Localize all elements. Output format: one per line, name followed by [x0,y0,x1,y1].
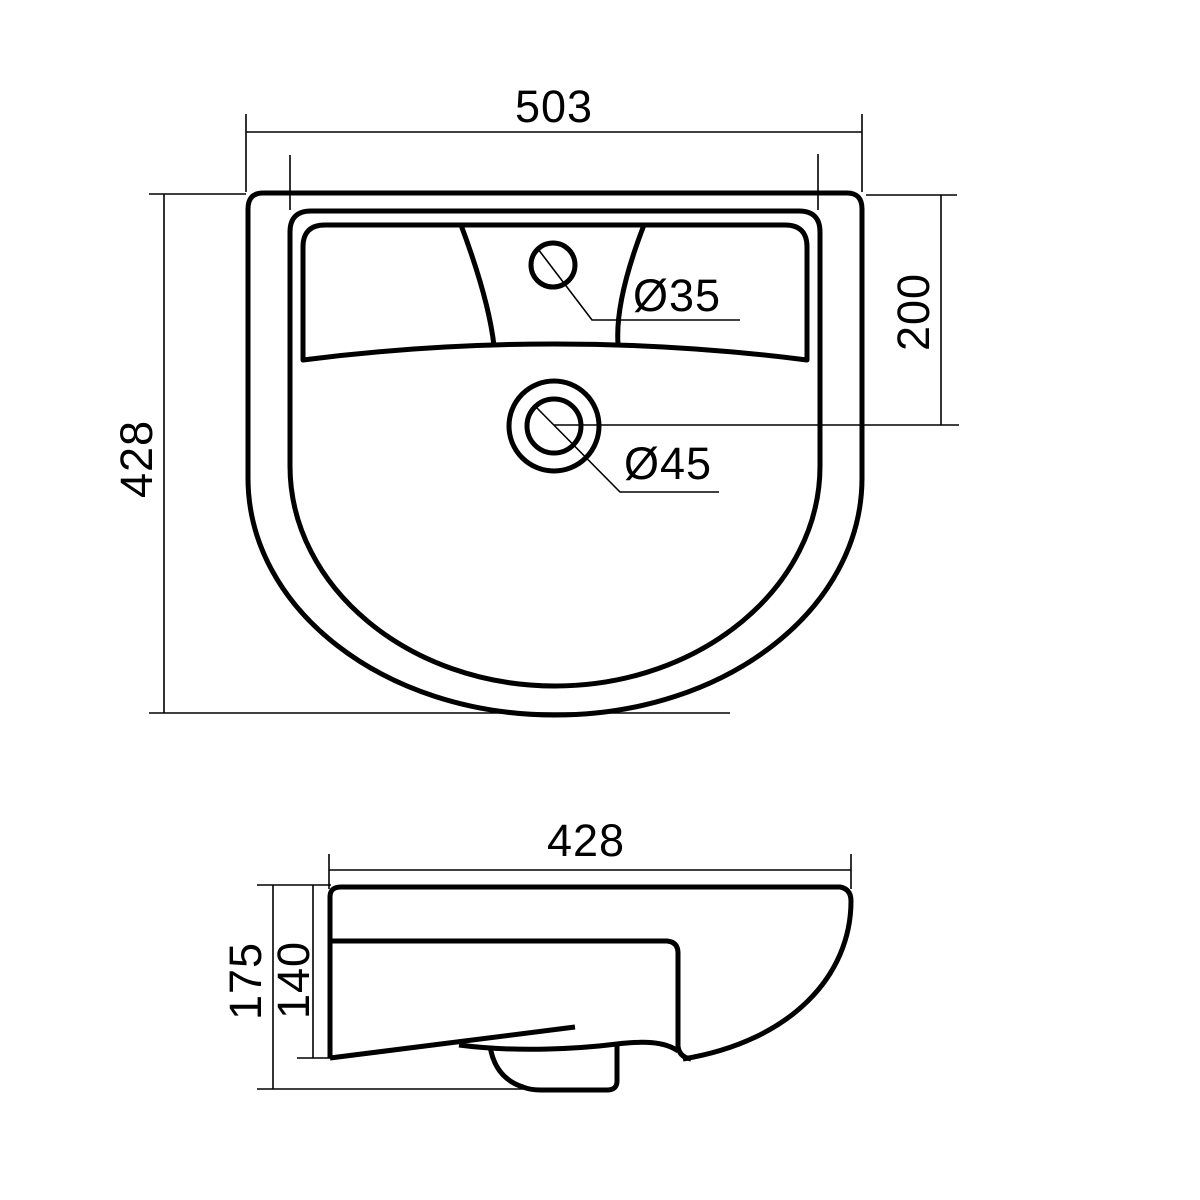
dim-label-overall-height: 175 [220,942,271,1020]
side-view-outer-outline [330,887,851,1059]
side-view-basin-slope-line [330,1027,575,1058]
drawing-canvas: 503 428 200 Ø35 Ø45 [0,0,1200,1200]
faucet-hole-circle [531,243,575,287]
dim-label-basin-width: 428 [547,815,625,866]
top-view-inner-rim-outline [290,211,820,686]
top-view-dimension-lines [149,114,959,713]
dim-label-overall-depth: 428 [111,420,162,498]
dim-label-overall-width: 503 [515,81,593,132]
side-view-outlines [330,887,851,1090]
faucet-platform-left-curve [461,225,494,346]
washbasin-technical-drawing: 503 428 200 Ø35 Ø45 [0,0,1200,1200]
dim-label-drain-offset: 200 [888,273,939,351]
side-view-drain-trap-outline [490,1046,617,1090]
dim-label-faucet-hole-diameter: Ø35 [633,270,721,321]
top-view: 503 428 200 Ø35 Ø45 [111,81,959,715]
dim-label-drain-hole-diameter: Ø45 [624,438,712,489]
side-view: 428 175 140 [220,815,851,1090]
dim-label-body-height: 140 [268,941,319,1019]
